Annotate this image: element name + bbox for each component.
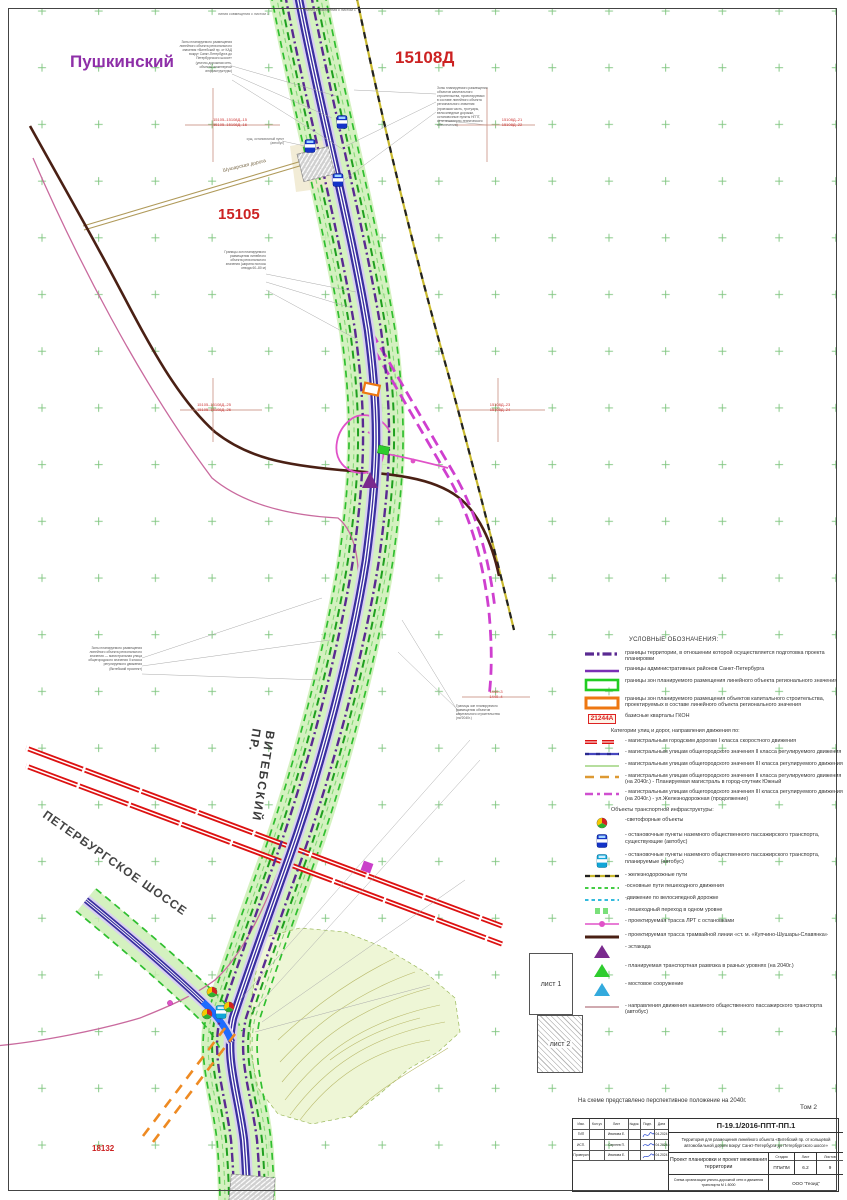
legend-item: - эстакада [583, 944, 843, 960]
annotation-callout: Зоны планируемого размещения линейного о… [56, 646, 142, 671]
sheets-label: Листов [817, 1153, 843, 1161]
sheets-column: Листов 9 [817, 1153, 843, 1174]
document-title: Проект планировки и проект межевания тер… [669, 1153, 769, 1174]
annotation-callout: Границы зон планируемого размещения лине… [210, 250, 266, 271]
sheet-index-1: лист 1 [529, 953, 573, 1015]
boundary-dashdot-icon [583, 650, 621, 658]
legend: УСЛОВНЫЕ ОБОЗНАЧЕНИЯ: границы территории… [583, 637, 843, 1019]
signature-icon [642, 1141, 655, 1149]
bus-stop-existing-icon [583, 833, 621, 849]
boundary-point-code: 1440–31440–4 [478, 690, 514, 699]
bicycle-path-icon [583, 896, 621, 904]
legend-item: - магистральным улицам общегородского зн… [583, 773, 843, 787]
railway-icon [583, 872, 621, 880]
staff-date: 04.2024 [655, 1140, 668, 1150]
legend-item: - магистральным улицам общегородского зн… [583, 749, 843, 758]
staff-role: ГИП [573, 1130, 590, 1140]
legend-item: - магистральным улицам общегородского зн… [583, 789, 843, 803]
staff-name: Иванова Е. [605, 1151, 629, 1161]
street-class-II-icon [583, 750, 621, 758]
title-block: Изм. Кол.уч Лист №док. Подп. Дата ГИП Ив… [572, 1118, 839, 1192]
highway-class-I-icon [583, 738, 621, 746]
sheet-value: 6.2 [795, 1161, 816, 1174]
quarter-label-15105: 15105 [218, 206, 288, 223]
street-class-III-icon [583, 762, 621, 770]
street-class-II-2040-icon [583, 773, 621, 781]
match-line-note: линия совмещения с листом 1 [218, 12, 269, 16]
crosswalk-icon [583, 907, 621, 915]
bus-direction-icon [583, 1003, 621, 1011]
col-list: Лист [605, 1119, 629, 1129]
legend-item: - планируемая транспортная развязка в ра… [583, 963, 843, 979]
stage-column: Стадия ППиПМ [769, 1153, 795, 1174]
legend-item: -светофорные объекты [583, 817, 843, 830]
staff-role: ИСП. [573, 1140, 590, 1150]
lrt-route-icon [583, 919, 621, 929]
interchange-2040-icon [583, 963, 621, 978]
bus-stop-note: сущ. остановочный пункт (автобус) [240, 137, 284, 145]
legend-item: границы зон планируемого размещения объе… [583, 696, 843, 711]
staff-role: Проверил [573, 1151, 590, 1161]
boundary-point-code: 15105–15108Д–1515105–15108Д–16 [200, 118, 260, 127]
stage-label: Стадия [769, 1153, 794, 1161]
pedestrian-path-icon [583, 884, 621, 892]
tram-line-icon [583, 933, 621, 941]
legend-item: - пешеходный переход в одном уровне [583, 907, 843, 916]
title-block-revision-table: Изм. Кол.уч Лист №док. Подп. Дата ГИП Ив… [573, 1119, 669, 1191]
signature-icon [642, 1131, 655, 1139]
col-dok: №док. [629, 1119, 641, 1129]
annotation-callout: Зоны планируемого размещения линейного о… [168, 40, 232, 73]
document-code: П-19.1/2016-ППТ-ПП.1 [669, 1119, 843, 1133]
legend-item: - остановочные пункты наземного обществе… [583, 832, 843, 849]
staff-date: 04.2024 [655, 1130, 668, 1140]
quarter-label-18132: 18132 [92, 1144, 114, 1153]
project-description: Территория для размещения линейного объе… [669, 1133, 843, 1153]
legend-item: - железнодорожные пути [583, 872, 843, 881]
scheme-title: Схема организации улично-дорожной сети и… [669, 1175, 769, 1191]
legend-categories-header: Категории улиц и дорог, направления движ… [611, 728, 843, 735]
col-data: Дата [655, 1119, 668, 1129]
legend-item: границы территории, в отношении которой … [583, 650, 843, 664]
base-quarter-icon: 21244А [583, 714, 621, 724]
sheets-value: 9 [817, 1161, 843, 1174]
legend-title: УСЛОВНЫЕ ОБОЗНАЧЕНИЯ: [629, 637, 843, 645]
staff-name: Иванова Е. [605, 1130, 629, 1140]
staff-date: 04.2024 [655, 1151, 668, 1161]
title-block-main: П-19.1/2016-ППТ-ПП.1 Территория для разм… [669, 1119, 843, 1191]
annotation-callout: Границы зон планируемого размещения объе… [456, 704, 514, 720]
bridge-structure-icon [583, 982, 621, 997]
company-name: ООО "Геоид" [769, 1175, 843, 1191]
legend-item: - магистральным городским дорогам I клас… [583, 738, 843, 747]
sheet-index-2: лист 2 [537, 1015, 583, 1073]
linear-object-zone-icon [583, 678, 621, 692]
street-class-III-2040-icon [583, 790, 621, 798]
legend-item: -основные пути пешеходного движения [583, 883, 843, 892]
legend-item: границы административных районов Санкт-П… [583, 666, 843, 675]
match-line-note: линия совмещения с листом 1 [305, 8, 356, 12]
signature-icon [642, 1152, 655, 1160]
overpass-icon [583, 944, 621, 959]
capital-construction-zone-icon [583, 696, 621, 710]
legend-item: - проектируемая трасса трамвайной линии … [583, 932, 843, 941]
perspective-note: На схеме представлено перспективное поло… [578, 1098, 747, 1104]
stage-value: ППиПМ [769, 1161, 794, 1174]
legend-item: - остановочные пункты наземного обществе… [583, 852, 843, 869]
legend-item: границы зон планируемого размещения лине… [583, 678, 843, 693]
col-koluch: Кол.уч [590, 1119, 605, 1129]
col-izm: Изм. [573, 1119, 590, 1129]
legend-item: -движение по велосипедной дорожке [583, 895, 843, 904]
boundary-point-code: 15108Д–2315108Д–24 [470, 403, 530, 412]
bus-stop-planned-icon [583, 853, 621, 869]
legend-item: - мостовое сооружение [583, 981, 843, 997]
traffic-light-icon [583, 817, 621, 829]
annotation-callout: Зоны планируемого размещения объектов ка… [437, 86, 501, 127]
sheet-column: Лист 6.2 [795, 1153, 817, 1174]
col-podp: Подп. [641, 1119, 655, 1129]
legend-objects-header: Объекты транспортной инфраструктуры: [611, 807, 843, 814]
staff-name: Сергеев П. [605, 1140, 629, 1150]
legend-item: - проектируемая трасса ЛРТ с остановками [583, 918, 843, 929]
volume-label: Том 2 [800, 1104, 817, 1111]
boundary-point-code: 15105–15108Д–2515105–15108Д–26 [184, 403, 244, 412]
sheet-label: Лист [795, 1153, 816, 1161]
legend-item: - направления движения наземного обществ… [583, 1003, 843, 1017]
quarter-label-15108d: 15108Д [395, 48, 485, 68]
district-boundary-icon [583, 667, 621, 675]
plan-sheet: Пушкинский 15108Д 15105 18132 ВИТЕБСКИЙ … [0, 0, 847, 1200]
legend-item: 21244А базисные кварталы ГКОН [583, 713, 843, 724]
legend-item: - магистральным улицам общегородского зн… [583, 761, 843, 770]
